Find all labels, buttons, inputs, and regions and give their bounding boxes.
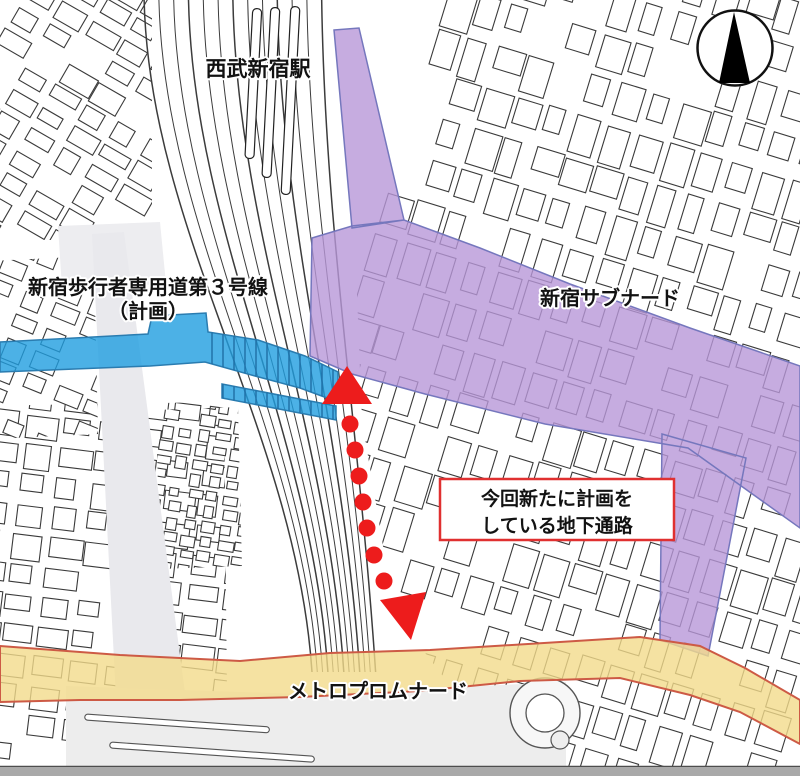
building-block: [174, 456, 186, 470]
building-block: [195, 444, 207, 457]
map-edge-strip: [0, 767, 800, 776]
annotation-box: 今回新たに計画を している地下通路: [440, 479, 674, 540]
building-block: [36, 627, 68, 650]
building-block: [43, 568, 78, 591]
building-block: [0, 440, 18, 462]
building-block: [176, 443, 192, 455]
building-block: [218, 419, 231, 429]
building-block: [59, 448, 94, 470]
building-block: [203, 506, 214, 519]
building-block: [20, 473, 44, 493]
building-block: [156, 455, 171, 465]
building-block: [49, 537, 85, 561]
building-block: [201, 521, 216, 534]
building-block: [192, 460, 208, 471]
label-subnade: 新宿サブナード: [540, 286, 680, 310]
building-block: [179, 535, 195, 548]
building-block: [41, 598, 68, 620]
building-block: [200, 414, 216, 427]
map-canvas: 今回新たに計画を している地下通路 西武新宿駅 新宿歩行者専用道第３号線 （計画…: [0, 0, 800, 776]
building-block: [189, 489, 203, 499]
building-block: [159, 440, 174, 452]
building-block: [213, 554, 229, 567]
building-block: [227, 481, 239, 490]
building-block: [163, 531, 177, 542]
arrow-dot: [342, 416, 359, 433]
building-block: [54, 478, 75, 500]
subway-entrance-inner: [526, 694, 564, 732]
building-block: [210, 464, 224, 475]
building-block: [169, 487, 179, 496]
arrow-dot: [359, 520, 376, 537]
building-block: [186, 505, 196, 518]
building-block: [86, 511, 107, 530]
building-block: [227, 466, 238, 479]
building-block: [168, 501, 181, 512]
building-block: [205, 491, 217, 501]
building-block: [219, 525, 230, 535]
building-block: [16, 505, 43, 529]
label-seibu-shinjuku-station: 西武新宿駅: [206, 57, 312, 81]
building-block: [4, 594, 31, 611]
arrow-dot: [347, 442, 364, 459]
building-block: [179, 428, 191, 438]
building-block: [3, 623, 33, 644]
building-block: [161, 426, 173, 440]
arrow-dot: [376, 573, 393, 590]
label-pedestrian-road-line2: （計画）: [108, 299, 188, 323]
building-block: [9, 564, 32, 584]
building-block: [184, 519, 196, 529]
building-block: [198, 430, 210, 443]
building-block: [0, 741, 11, 759]
building-block: [77, 600, 99, 617]
building-block: [27, 715, 55, 738]
building-block: [182, 615, 217, 636]
building-block: [188, 584, 218, 602]
building-block: [223, 496, 238, 507]
building-block: [189, 474, 201, 488]
building-block: [213, 447, 227, 456]
building-block: [0, 469, 9, 487]
building-block: [11, 533, 43, 562]
annotation-text-line1: 今回新たに計画を: [480, 487, 633, 510]
building-block: [165, 517, 177, 530]
annotation-text-line2: している地下通路: [481, 514, 633, 537]
building-block: [218, 541, 235, 553]
building-block: [196, 550, 210, 562]
building-block: [23, 443, 51, 471]
arrow-dot: [351, 468, 368, 485]
building-block: [209, 476, 221, 488]
building-block: [52, 507, 76, 532]
building-block: [180, 550, 193, 559]
arrow-dot: [355, 494, 372, 511]
north-arrow: [698, 11, 773, 86]
building-block: [223, 510, 238, 522]
label-metro-promenade: メトロプロムナード: [288, 680, 468, 703]
label-pedestrian-road-line1: 新宿歩行者専用道第３号線: [28, 275, 268, 299]
building-block: [164, 408, 180, 420]
subway-entrance-detail: [551, 731, 569, 749]
building-block: [200, 536, 211, 547]
arrow-dot: [366, 547, 383, 564]
building-block: [72, 630, 94, 648]
building-block: [25, 415, 59, 441]
